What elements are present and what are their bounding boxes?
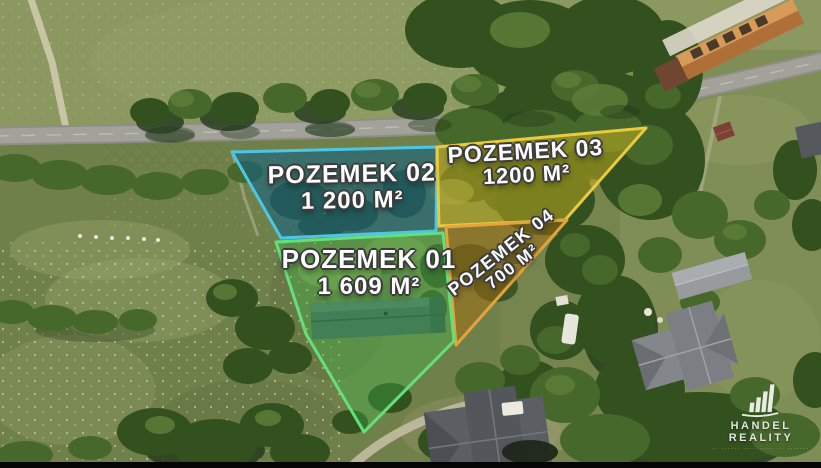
logo-tagline: ·· ······ ·········· ·· ······· — [702, 446, 820, 452]
aerial-photo — [0, 0, 821, 468]
handel-reality-logo: HANDEL REALITY ·· ······ ·········· ·· ·… — [702, 381, 820, 452]
letterbox-bar — [0, 462, 821, 468]
white-vehicle — [501, 401, 523, 416]
parcel-02-area-text: 1 200 M² — [242, 186, 462, 215]
bar-chart-logo-icon — [735, 381, 787, 419]
aerial-real-estate-frame: POZEMEK 02 1 200 M² POZEMEK 03 1200 M² P… — [0, 0, 821, 468]
logo-brand-text: HANDEL REALITY — [702, 420, 820, 444]
parcel-03-label: POZEMEK 03 1200 M² — [429, 134, 623, 192]
parcel-01-name: POZEMEK 01 — [260, 246, 478, 274]
